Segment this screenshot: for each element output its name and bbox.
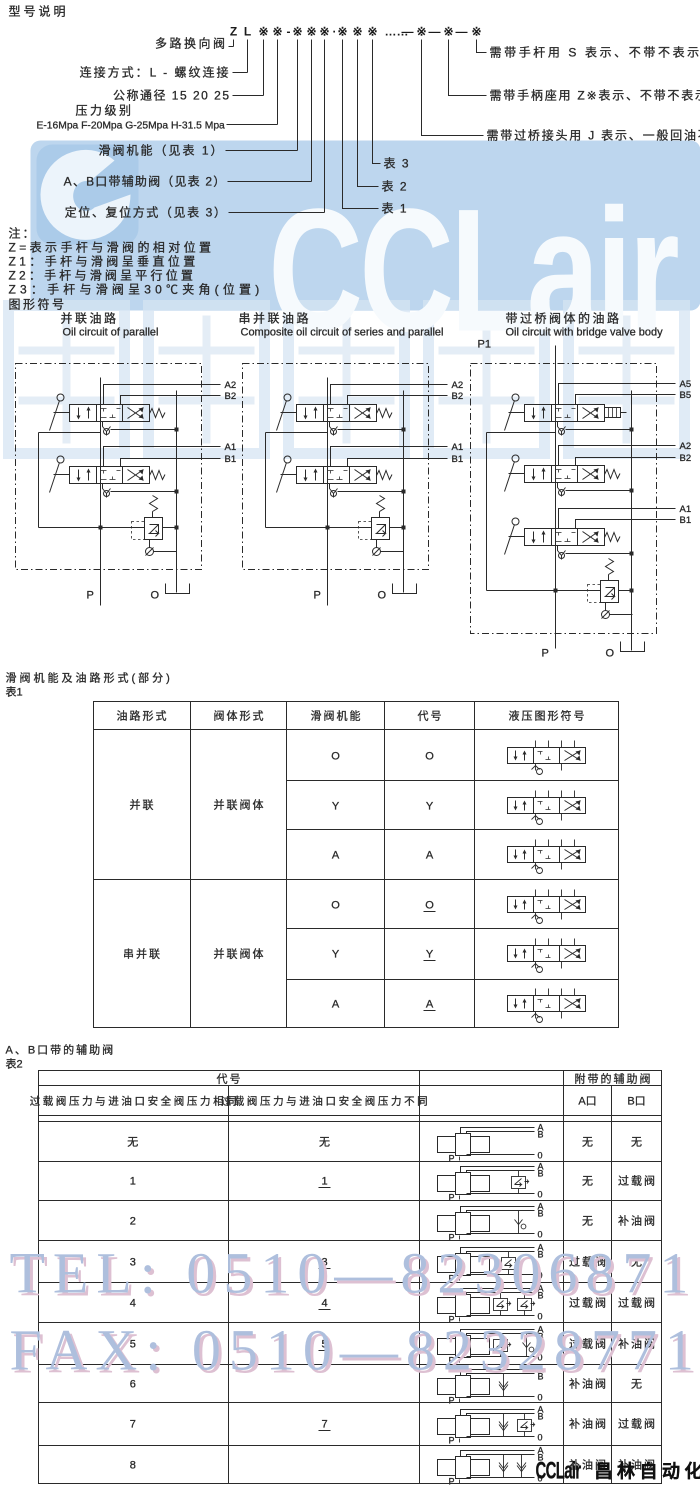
svg-text:B5: B5 bbox=[680, 390, 692, 401]
svg-text:P: P bbox=[449, 1396, 455, 1406]
svg-text:B1: B1 bbox=[452, 454, 464, 465]
svg-text:P: P bbox=[87, 590, 94, 602]
svg-text:CCLair: CCLair bbox=[536, 1458, 582, 1484]
svg-text:油路形式: 油路形式 bbox=[117, 709, 169, 723]
svg-text:压力级别: 压力级别 bbox=[76, 104, 134, 118]
svg-text:1: 1 bbox=[130, 1176, 138, 1188]
svg-text:P: P bbox=[449, 1436, 455, 1446]
svg-text:0: 0 bbox=[538, 1393, 543, 1403]
svg-text:※: ※ bbox=[352, 25, 362, 39]
svg-text:B: B bbox=[538, 1130, 544, 1140]
svg-text:多路换向阀: 多路换向阀 bbox=[155, 36, 228, 51]
svg-text:附带的辅助阀: 附带的辅助阀 bbox=[575, 1072, 653, 1086]
svg-text:FAX: 0510—82328771: FAX: 0510—82328771 bbox=[10, 1318, 700, 1383]
svg-text:TEL: 0510—82306871: TEL: 0510—82306871 bbox=[10, 1241, 697, 1306]
svg-text:O: O bbox=[331, 751, 340, 763]
svg-text:型号说明: 型号说明 bbox=[9, 4, 69, 19]
svg-text:滑阀机能（见表 1）: 滑阀机能（见表 1） bbox=[98, 144, 224, 158]
svg-text:L: L bbox=[244, 25, 251, 39]
svg-text:Oil circuit with bridge valve: Oil circuit with bridge valve body bbox=[506, 327, 664, 339]
svg-text:注：: 注： bbox=[9, 226, 37, 241]
svg-text:Z=表示手杆与滑阀的相对位置: Z=表示手杆与滑阀的相对位置 bbox=[9, 240, 215, 255]
svg-text:O: O bbox=[425, 900, 434, 912]
svg-text:O: O bbox=[378, 590, 387, 602]
svg-text:Composite oil circuit of serie: Composite oil circuit of series and para… bbox=[241, 327, 444, 339]
svg-text:P: P bbox=[449, 1154, 455, 1164]
svg-text:※: ※ bbox=[471, 25, 481, 39]
svg-text:代号: 代号 bbox=[217, 1073, 243, 1086]
svg-text:P: P bbox=[542, 648, 549, 660]
svg-text:2: 2 bbox=[130, 1216, 138, 1228]
svg-text:代号: 代号 bbox=[418, 710, 444, 723]
svg-text:A: A bbox=[332, 999, 340, 1011]
svg-text:表1: 表1 bbox=[6, 685, 23, 699]
svg-text:补油阀: 补油阀 bbox=[569, 1417, 608, 1431]
svg-text:7: 7 bbox=[321, 1419, 327, 1431]
svg-text:无: 无 bbox=[631, 1137, 644, 1149]
svg-text:昌林自动化: 昌林自动化 bbox=[595, 1461, 700, 1482]
svg-text:无: 无 bbox=[582, 1137, 595, 1149]
svg-text:7: 7 bbox=[130, 1419, 138, 1431]
svg-text:表 2: 表 2 bbox=[382, 180, 409, 194]
svg-text:B: B bbox=[538, 1412, 544, 1422]
svg-text:Y: Y bbox=[332, 949, 340, 961]
svg-text:带过桥阀体的油路: 带过桥阀体的油路 bbox=[506, 311, 622, 326]
svg-text:并联: 并联 bbox=[130, 798, 156, 812]
svg-text:液压图形符号: 液压图形符号 bbox=[509, 709, 587, 723]
svg-text:B口: B口 bbox=[627, 1096, 645, 1108]
svg-text:-: - bbox=[287, 25, 291, 39]
svg-text:B: B bbox=[538, 1209, 544, 1219]
svg-text:※: ※ bbox=[319, 25, 329, 39]
svg-text:串并联: 串并联 bbox=[123, 947, 162, 961]
svg-text:※: ※ bbox=[416, 25, 426, 39]
svg-text:并联油路: 并联油路 bbox=[61, 311, 119, 326]
svg-text:阀体形式: 阀体形式 bbox=[214, 709, 266, 723]
svg-text:0: 0 bbox=[538, 1190, 543, 1200]
svg-text:Z: Z bbox=[230, 25, 237, 39]
svg-text:并联阀体: 并联阀体 bbox=[214, 798, 266, 812]
svg-text:A1: A1 bbox=[680, 504, 692, 515]
svg-text:※: ※ bbox=[272, 25, 282, 39]
svg-text:P: P bbox=[449, 1477, 455, 1487]
svg-text:定位、复位方式（见表 3）: 定位、复位方式（见表 3） bbox=[65, 205, 228, 220]
svg-text:O: O bbox=[606, 648, 615, 660]
svg-text:A2: A2 bbox=[225, 380, 237, 391]
svg-text:过载阀: 过载阀 bbox=[618, 1417, 657, 1431]
svg-text:B1: B1 bbox=[680, 515, 692, 526]
svg-text:O: O bbox=[425, 751, 434, 763]
svg-text:A2: A2 bbox=[452, 380, 464, 391]
svg-text:并联阀体: 并联阀体 bbox=[214, 947, 266, 961]
svg-text:※: ※ bbox=[306, 25, 316, 39]
svg-text:※: ※ bbox=[443, 25, 453, 39]
svg-text:表 1: 表 1 bbox=[382, 202, 409, 216]
svg-text:需带过桥接头用 J 表示、一般回油不表示: 需带过桥接头用 J 表示、一般回油不表示 bbox=[487, 128, 700, 143]
svg-text:需带手杆用 S 表示、不带不表示: 需带手杆用 S 表示、不带不表示 bbox=[490, 46, 700, 60]
svg-text:无: 无 bbox=[319, 1137, 330, 1149]
svg-text:B2: B2 bbox=[452, 391, 464, 402]
svg-text:无: 无 bbox=[582, 1176, 595, 1188]
svg-text:P: P bbox=[449, 1193, 455, 1203]
svg-text:Z3：手杆与滑阀呈30℃夹角(位置): Z3：手杆与滑阀呈30℃夹角(位置) bbox=[9, 282, 264, 297]
svg-text:Z1：手杆与滑阀呈垂直位置: Z1：手杆与滑阀呈垂直位置 bbox=[9, 254, 199, 269]
svg-text:B2: B2 bbox=[225, 391, 237, 402]
svg-text:A2: A2 bbox=[680, 441, 692, 452]
svg-text:Y: Y bbox=[332, 801, 340, 813]
svg-text:A1: A1 bbox=[225, 442, 237, 453]
svg-text:需带手柄座用 Z※表示、不带不表示: 需带手柄座用 Z※表示、不带不表示 bbox=[490, 88, 700, 103]
svg-text:※: ※ bbox=[258, 25, 268, 39]
svg-text:B: B bbox=[538, 1169, 544, 1179]
svg-text:Y: Y bbox=[426, 801, 434, 813]
svg-text:表2: 表2 bbox=[6, 1057, 23, 1071]
svg-text:—: — bbox=[402, 25, 414, 39]
svg-text:过载阀: 过载阀 bbox=[618, 1174, 657, 1188]
svg-text:0: 0 bbox=[538, 1151, 543, 1161]
svg-text:A: A bbox=[332, 850, 340, 862]
svg-text:公称通径 15 20 25: 公称通径 15 20 25 bbox=[113, 89, 231, 103]
svg-text:1: 1 bbox=[321, 1176, 327, 1188]
svg-text:B2: B2 bbox=[680, 453, 692, 464]
svg-text:·: · bbox=[333, 25, 337, 39]
svg-text:A、B口带辅助阀（见表 2）: A、B口带辅助阀（见表 2） bbox=[64, 175, 227, 189]
svg-text:E-16Mpa F-20Mpa G-25Mpa H-31.5: E-16Mpa F-20Mpa G-25Mpa H-31.5 Mpa bbox=[37, 121, 226, 132]
svg-text:O: O bbox=[331, 900, 340, 912]
svg-text:无: 无 bbox=[582, 1216, 595, 1228]
svg-text:Z2：手杆与滑阀呈平行位置: Z2：手杆与滑阀呈平行位置 bbox=[9, 268, 197, 283]
svg-text:无: 无 bbox=[127, 1137, 140, 1149]
svg-text:※: ※ bbox=[367, 25, 377, 39]
svg-text:—: — bbox=[429, 25, 441, 39]
svg-text:补油阀: 补油阀 bbox=[618, 1214, 657, 1228]
svg-text:O: O bbox=[151, 590, 160, 602]
svg-text:Y: Y bbox=[426, 949, 434, 961]
svg-text:A5: A5 bbox=[680, 379, 692, 390]
svg-text:0: 0 bbox=[538, 1433, 543, 1443]
svg-text:A口: A口 bbox=[578, 1096, 596, 1108]
svg-text:A1: A1 bbox=[452, 442, 464, 453]
svg-text:Oil circuit of parallel: Oil circuit of parallel bbox=[63, 327, 159, 339]
svg-text:过载阀压力与进油口安全阀压力不同: 过载阀压力与进油口安全阀压力不同 bbox=[221, 1095, 431, 1108]
svg-text:过载阀压力与进油口安全阀压力相同: 过载阀压力与进油口安全阀压力相同 bbox=[30, 1095, 240, 1108]
svg-text:A: A bbox=[426, 850, 434, 862]
svg-text:※: ※ bbox=[337, 25, 347, 39]
svg-text:A、B口带的辅助阀: A、B口带的辅助阀 bbox=[6, 1043, 116, 1057]
svg-text:B1: B1 bbox=[225, 454, 237, 465]
svg-text:8: 8 bbox=[130, 1460, 138, 1472]
svg-text:A: A bbox=[426, 999, 434, 1011]
svg-text:P1: P1 bbox=[478, 339, 491, 351]
svg-text:滑阀机能: 滑阀机能 bbox=[311, 709, 363, 723]
svg-text:连接方式：L - 螺纹连接: 连接方式：L - 螺纹连接 bbox=[80, 65, 231, 80]
svg-text:P: P bbox=[314, 590, 321, 602]
svg-text:表 3: 表 3 bbox=[384, 157, 411, 171]
svg-text:0: 0 bbox=[538, 1230, 543, 1240]
svg-text:※: ※ bbox=[292, 25, 302, 39]
svg-text:滑阀机能及油路形式(部分): 滑阀机能及油路形式(部分) bbox=[6, 671, 173, 685]
svg-text:—: — bbox=[456, 25, 468, 39]
svg-text:串并联油路: 串并联油路 bbox=[239, 311, 312, 326]
svg-text:图形符号: 图形符号 bbox=[9, 297, 67, 312]
